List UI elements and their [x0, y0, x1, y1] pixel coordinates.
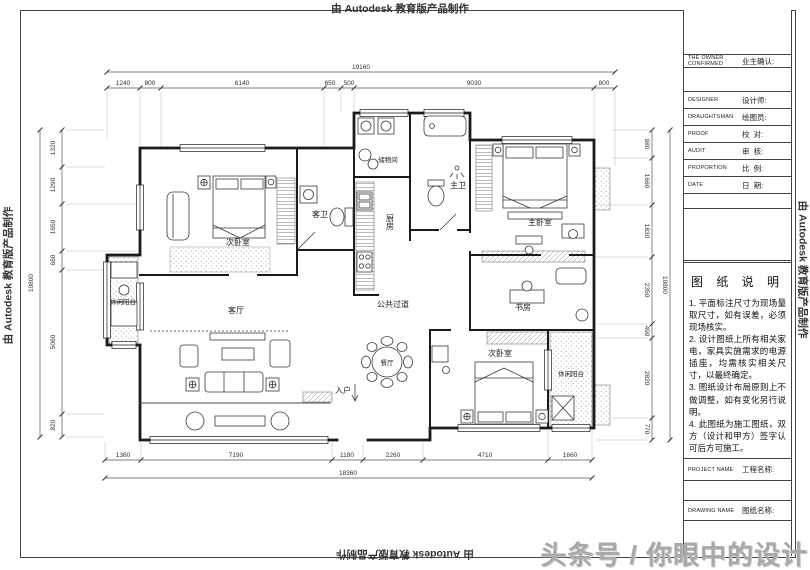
svg-text:1290: 1290: [50, 177, 57, 192]
svg-text:1830: 1830: [643, 224, 650, 239]
label-corridor: 公共过道: [377, 299, 409, 309]
svg-text:800: 800: [599, 80, 610, 87]
toutiao-watermark: 头条号 / 你眼中的设计: [540, 535, 808, 570]
svg-text:1660: 1660: [563, 452, 578, 459]
drawing-name-row: DRAWING NAME 图纸名称:: [684, 501, 791, 521]
floor-plan: 19160 1240 800 6140 650 500 9030 800 183…: [0, 0, 683, 570]
svg-text:1660: 1660: [643, 174, 650, 189]
label-dining: 餐厅: [381, 358, 395, 367]
svg-text:1180: 1180: [340, 452, 354, 459]
stove: [357, 252, 372, 272]
svg-text:9030: 9030: [467, 80, 482, 87]
autodesk-watermark-top: 由 Autodesk 教育版产品制作: [300, 1, 500, 16]
owner-confirmed-en: THE OWNER CONFIRMED: [688, 55, 740, 67]
svg-text:2350: 2350: [643, 283, 650, 298]
label-guest-bath: 客卫: [312, 209, 328, 219]
title-block: THE OWNER CONFIRMED 业主确认: DESIGNER 设计师: …: [683, 10, 792, 556]
project-name-row: PROJECT NAME 工程名称:: [684, 459, 791, 481]
sofa-main: [205, 372, 263, 392]
bay-console: [215, 416, 265, 426]
study-sofa: [556, 268, 586, 284]
label-living: 客厅: [228, 305, 244, 315]
bay-window-top: [594, 168, 610, 210]
note-3: 3. 图纸设计布局原则上不做调整，如有变化另行说明。: [689, 381, 786, 417]
label-master-bedroom: 主卧室: [528, 217, 552, 227]
svg-text:770: 770: [643, 424, 650, 435]
coffee-table: [222, 348, 254, 360]
proportion-row: PROPORTION 比 例:: [684, 160, 791, 177]
bedroom-rug: [170, 247, 270, 272]
plant: [359, 149, 371, 161]
svg-text:7190: 7190: [229, 452, 244, 459]
label-balcony-left: 休闲阳台: [110, 297, 136, 306]
bay-chair-right: [271, 412, 289, 430]
chaise: [270, 340, 290, 367]
guest-bath-toilet: [330, 208, 344, 226]
study-shelf: [482, 251, 585, 262]
proof-row: PROOF 校 对:: [684, 126, 791, 143]
drawing-sheet: 由 Autodesk 教育版产品制作 由 Autodesk 教育版产品制作 由 …: [0, 0, 810, 570]
svg-text:650: 650: [325, 80, 336, 87]
owner-confirmed-zh: 业主确认:: [742, 56, 774, 67]
svg-text:10800: 10800: [28, 274, 35, 292]
shoe-cabinet: [303, 392, 332, 402]
drawing-notes: 图 纸 说 明 1. 平面标注尺寸为现场量取尺寸，如有误差，必须现场核实。 2.…: [684, 263, 791, 459]
svg-text:1650: 1650: [50, 219, 57, 234]
autodesk-watermark-right: 由 Autodesk 教育版产品制作: [796, 195, 810, 345]
svg-text:500: 500: [344, 80, 355, 87]
notes-title: 图 纸 说 明: [689, 273, 786, 290]
wardrobe-tl: [277, 178, 295, 244]
svg-text:800: 800: [145, 80, 156, 87]
closet-br: [487, 332, 548, 344]
furniture: [111, 116, 588, 430]
label-balcony-right: 休闲阳台: [558, 369, 584, 378]
svg-text:980: 980: [643, 139, 650, 150]
spacer-cell: [684, 194, 791, 209]
svg-text:820: 820: [50, 419, 57, 430]
bay-window-bottom: [594, 385, 610, 425]
wardrobe-master: [476, 145, 492, 211]
label-bedroom-tl: 次卧室: [226, 237, 250, 247]
label-master-bath: 主卫: [450, 180, 466, 190]
label-study: 书房: [515, 302, 531, 312]
master-toilet: [428, 186, 444, 206]
svg-text:660: 660: [50, 254, 57, 265]
label-bedroom-br: 次卧室: [488, 348, 512, 358]
svg-text:10800: 10800: [661, 276, 668, 294]
study-plant: [576, 309, 588, 321]
autodesk-watermark-bottom: 由 Autodesk 教育版产品制作: [335, 547, 475, 562]
svg-text:5060: 5060: [50, 334, 57, 349]
svg-text:490: 490: [643, 326, 650, 337]
spacer-cell-2: [684, 209, 791, 263]
svg-text:2820: 2820: [643, 371, 650, 386]
study-desk: [510, 290, 544, 303]
audit-row: AUDIT 审 核:: [684, 143, 791, 160]
svg-text:19160: 19160: [352, 64, 370, 71]
label-storage: 储物间: [378, 155, 398, 164]
note-4: 4. 此图纸为施工图纸，双方（设计和甲方）签字认可后方可施工。: [689, 418, 786, 454]
svg-text:6140: 6140: [235, 80, 250, 87]
note-2: 2. 设计图纸上所有相关家电，家具实施需求的电源插座，均需核实相关尺寸，以最终确…: [689, 333, 786, 381]
signature-cell: [684, 68, 791, 92]
draughtsman-row: DRAUGHTSMAN 绘图员:: [684, 109, 791, 126]
designer-row: DESIGNER 设计师:: [684, 92, 791, 109]
svg-text:1320: 1320: [50, 140, 57, 155]
svg-text:1360: 1360: [116, 452, 131, 459]
note-1: 1. 平面标注尺寸为现场量取尺寸，如有误差，必须现场核实。: [689, 297, 786, 333]
desk-br: [432, 346, 448, 362]
svg-text:18360: 18360: [339, 470, 357, 477]
sofa-bedroom: [167, 192, 189, 240]
armchair-left: [180, 345, 198, 367]
date-row: DATE 日 期:: [684, 177, 791, 194]
project-name-value-cell: [684, 481, 791, 501]
svg-text:2260: 2260: [386, 452, 401, 459]
svg-text:4710: 4710: [478, 452, 493, 459]
bay-chair-left: [186, 412, 204, 430]
dresser: [516, 236, 542, 244]
svg-text:1240: 1240: [116, 80, 131, 87]
title-block-logo-cell: [684, 10, 791, 55]
tv-console: [210, 333, 265, 340]
label-entry: 入户: [335, 385, 351, 395]
label-kitchen: 厨房: [386, 214, 395, 231]
entry-arrow: [352, 384, 358, 401]
owner-confirmed-row: THE OWNER CONFIRMED 业主确认:: [684, 55, 791, 68]
autodesk-watermark-left: 由 Autodesk 教育版产品制作: [1, 201, 16, 351]
